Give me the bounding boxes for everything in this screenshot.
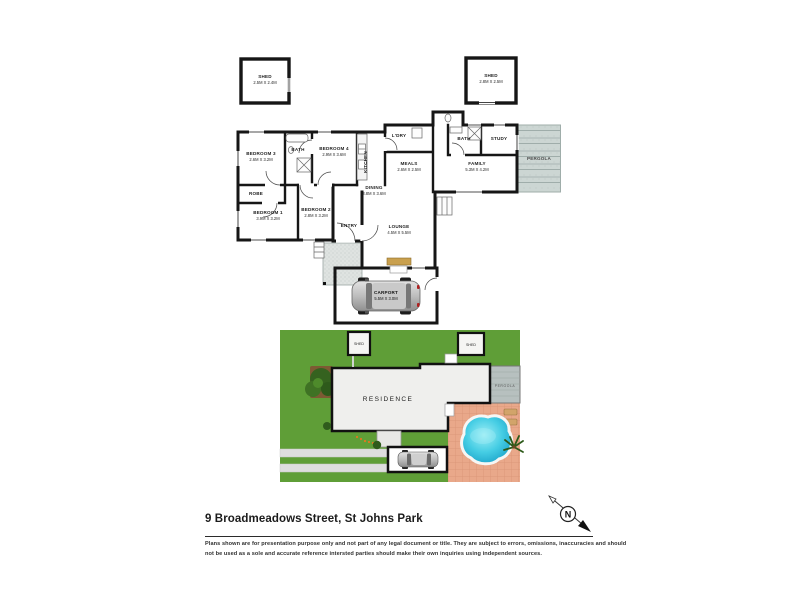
room-label-kitchen: KITCHEN <box>363 151 369 173</box>
compass-needle-north <box>549 496 556 503</box>
room-label-bath-1: BATH <box>291 147 304 153</box>
title-rule <box>205 536 593 537</box>
disclaimer-line-2: not be used as a sole and accurate refer… <box>205 551 542 557</box>
bush-2 <box>323 422 331 430</box>
site-pergola: PERGOLA <box>490 366 520 403</box>
site-shed-left-label: SHED <box>354 342 364 346</box>
room-label-pergola: PERGOLA <box>527 156 551 162</box>
shed-right-label: SHED 2.8M X 2.5M <box>479 73 502 85</box>
shed-left-label: SHED 2.5M X 2.4M <box>253 74 276 86</box>
disclaimer-line-1: Plans shown are for presentation purpose… <box>205 541 626 547</box>
site-shed-left: SHED <box>348 332 370 355</box>
floor-plan <box>236 58 560 323</box>
site-shed-right: SHED <box>458 333 484 355</box>
room-label-robe: ROBE <box>249 191 263 197</box>
room-label-entry: ENTRY <box>341 223 357 229</box>
timber-deck <box>387 258 411 265</box>
room-label-bedroom-1: BEDROOM 1 3.9M X 3.2M <box>253 210 283 222</box>
plan-canvas: PERGOLA RESIDENCE <box>0 0 800 600</box>
room-label-bedroom-2: BEDROOM 2 2.8M X 3.2M <box>301 207 331 219</box>
room-label-lounge: LOUNGE 4.5M X 5.5M <box>387 224 410 236</box>
site-car <box>398 450 438 469</box>
site-pergola-label: PERGOLA <box>495 384 516 388</box>
room-label-meals: MEALS 2.6M X 2.5M <box>397 161 420 173</box>
carport-label: CARPORT 5.5M X 3.0M <box>374 290 398 302</box>
room-label-dining: DINING 3.8M X 3.6M <box>362 185 385 197</box>
floorplan-page: PERGOLA RESIDENCE <box>0 0 800 600</box>
room-label-bedroom-4: BEDROOM 4 2.9M X 3.6M <box>319 146 349 158</box>
room-label-family: FAMILY 5.3M X 4.2M <box>465 161 488 173</box>
room-label-study: STUDY <box>491 136 508 142</box>
room-label-laundry: L'DRY <box>392 133 406 139</box>
site-residence-label: RESIDENCE <box>363 396 414 403</box>
room-label-bedroom-3: BEDROOM 3 2.6M X 3.2M <box>246 151 276 163</box>
fp-porch <box>323 243 362 285</box>
pool-highlight <box>470 428 496 444</box>
bush <box>373 441 381 449</box>
site-plan: PERGOLA RESIDENCE <box>280 330 523 482</box>
room-label-bath-2: BATH <box>457 136 470 142</box>
site-steps-pool <box>445 404 454 416</box>
porch-post <box>323 282 326 285</box>
site-shed-right-label: SHED <box>466 343 476 347</box>
site-steps-top <box>445 354 457 363</box>
page-title: 9 Broadmeadows Street, St Johns Park <box>205 513 605 525</box>
deck-step <box>390 266 407 273</box>
